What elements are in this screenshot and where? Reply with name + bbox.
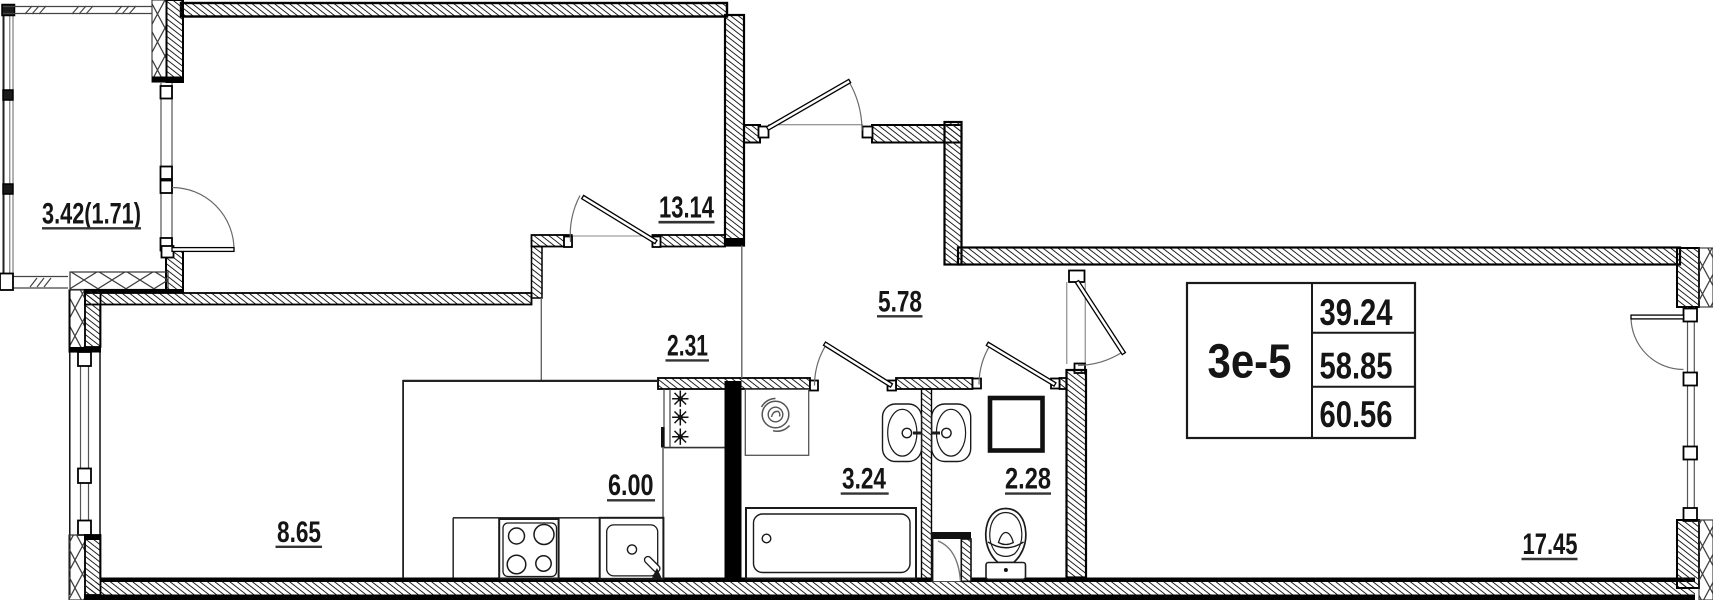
svg-text:5.78: 5.78	[878, 285, 922, 318]
svg-text:2.28: 2.28	[1005, 463, 1051, 496]
svg-text:3.24: 3.24	[842, 463, 886, 496]
svg-text:3.42(1.71): 3.42(1.71)	[42, 198, 141, 231]
svg-text:6.00: 6.00	[608, 469, 654, 502]
svg-text:58.85: 58.85	[1320, 344, 1393, 386]
svg-text:8.65: 8.65	[277, 516, 321, 549]
svg-text:2.31: 2.31	[667, 330, 708, 363]
svg-text:13.14: 13.14	[659, 190, 715, 225]
svg-text:39.24: 39.24	[1320, 291, 1393, 333]
svg-text:60.56: 60.56	[1320, 393, 1393, 435]
svg-text:17.45: 17.45	[1523, 528, 1578, 561]
svg-text:3e-5: 3e-5	[1208, 336, 1292, 389]
